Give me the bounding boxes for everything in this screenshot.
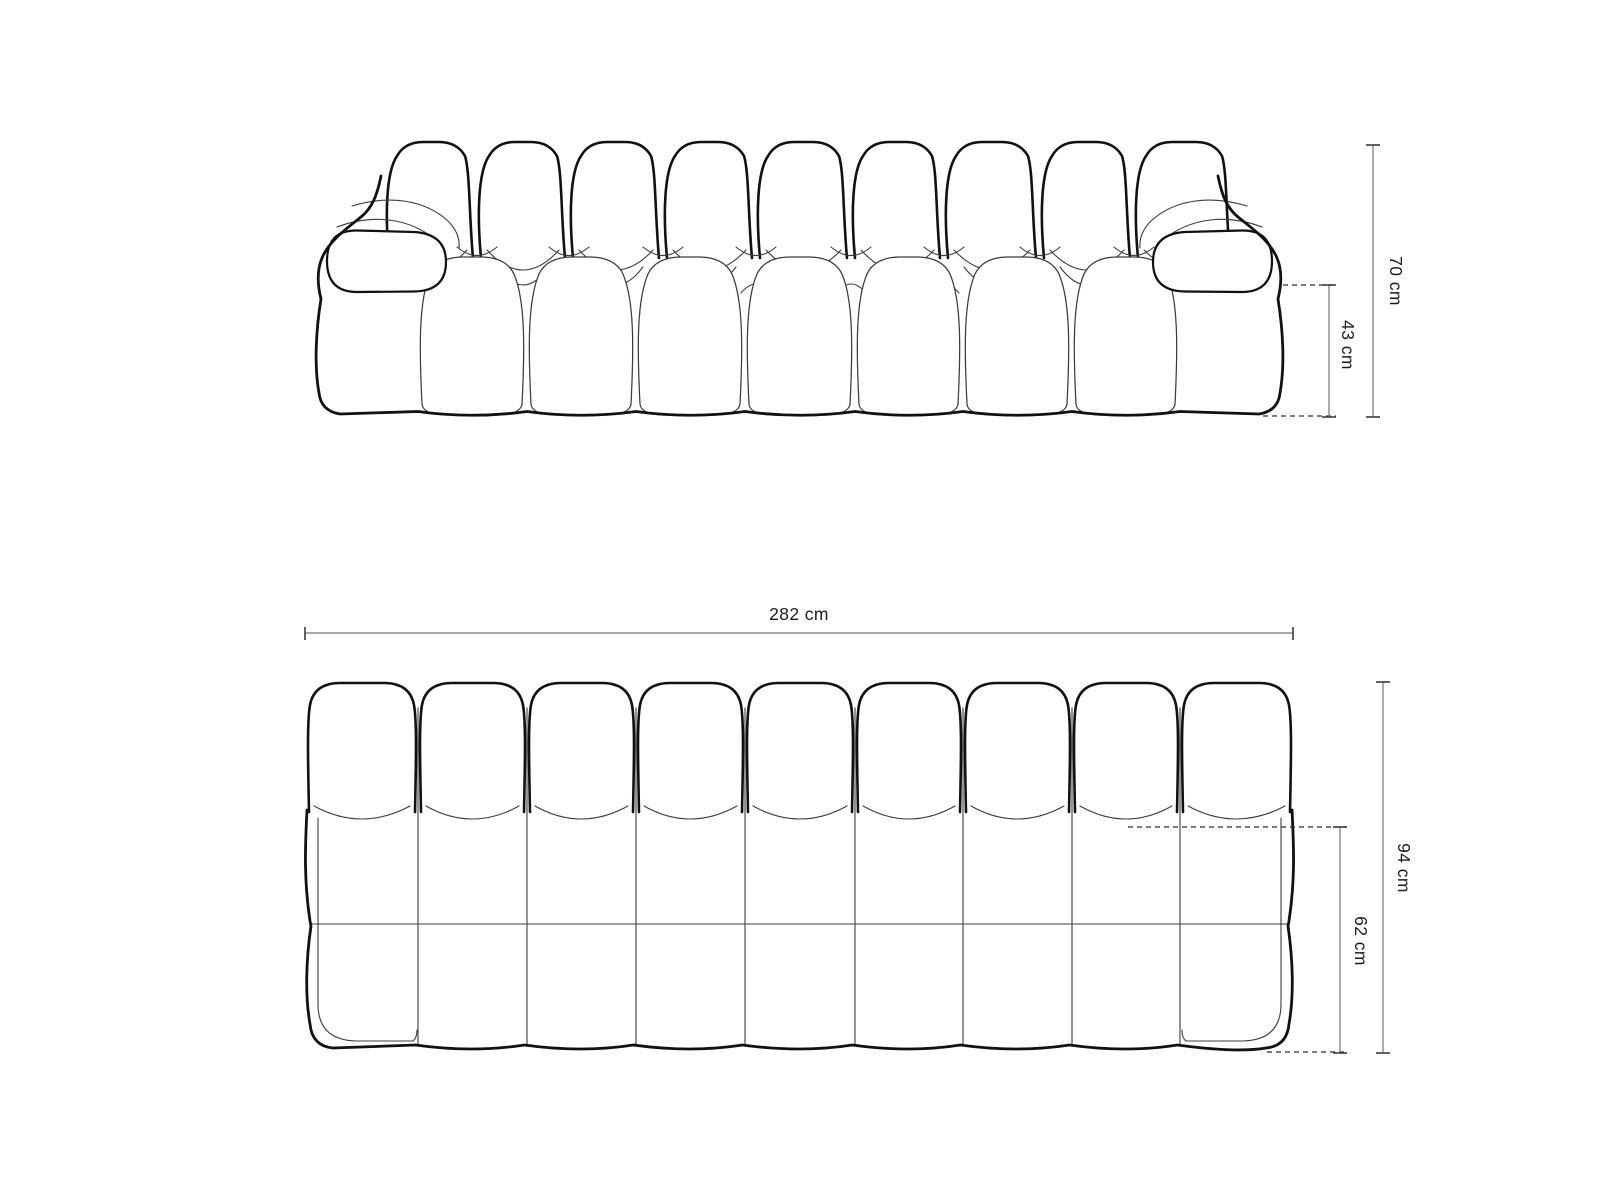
seat-cushion [747,257,851,415]
dimension-label-70cm: 70 cm [1386,256,1406,306]
back-cushion [946,142,1036,258]
drawing-canvas: 70 cm 43 cm 282 cm 94 cm [0,0,1600,1200]
back-cushion-top [529,683,634,812]
dimension-front-total-height: 70 cm [1366,145,1406,417]
back-cushion [479,142,565,258]
back-cushion-top [1074,683,1178,812]
left-armrest-contour [318,818,417,1041]
front-back-cushions [387,142,1230,258]
dimension-label-94cm: 94 cm [1394,843,1414,893]
back-cushion [758,142,847,258]
back-cushion-top [857,683,961,812]
back-cushion-top [420,683,525,812]
top-outer-silhouette [305,810,1293,1050]
back-cushion [853,142,940,258]
back-cushion-top [965,683,1070,812]
back-cushion [1042,142,1130,258]
dimension-top-seat-depth: 62 cm [1128,827,1371,1053]
seat-cushion [857,257,959,415]
left-armrest-pill [327,230,446,292]
back-cushion-top [747,683,853,812]
back-cushion-top [1182,683,1291,812]
seat-cushion [638,257,741,415]
back-cushion-top [308,683,416,812]
dimension-front-seat-height: 43 cm [1263,285,1358,417]
right-armrest-contour [1182,818,1281,1041]
top-view-sofa [305,683,1293,1050]
dimension-label-62cm: 62 cm [1351,916,1371,966]
dimension-label-43cm: 43 cm [1338,320,1358,370]
dimension-top-depth: 94 cm [1376,682,1414,1053]
sofa-technical-drawing: 70 cm 43 cm 282 cm 94 cm [0,0,1600,1200]
back-cushion [571,142,659,258]
front-seat-cushions [420,257,1176,415]
dimension-label-282cm: 282 cm [769,604,829,624]
right-armrest-pill [1153,230,1272,292]
back-cushion-top [638,683,743,812]
top-back-cushions [308,683,1291,812]
seat-cushion [965,257,1068,415]
dimension-top-width: 282 cm [305,604,1293,640]
front-view-sofa [316,142,1283,415]
back-cushion [665,142,752,258]
seat-cushion [529,257,632,415]
